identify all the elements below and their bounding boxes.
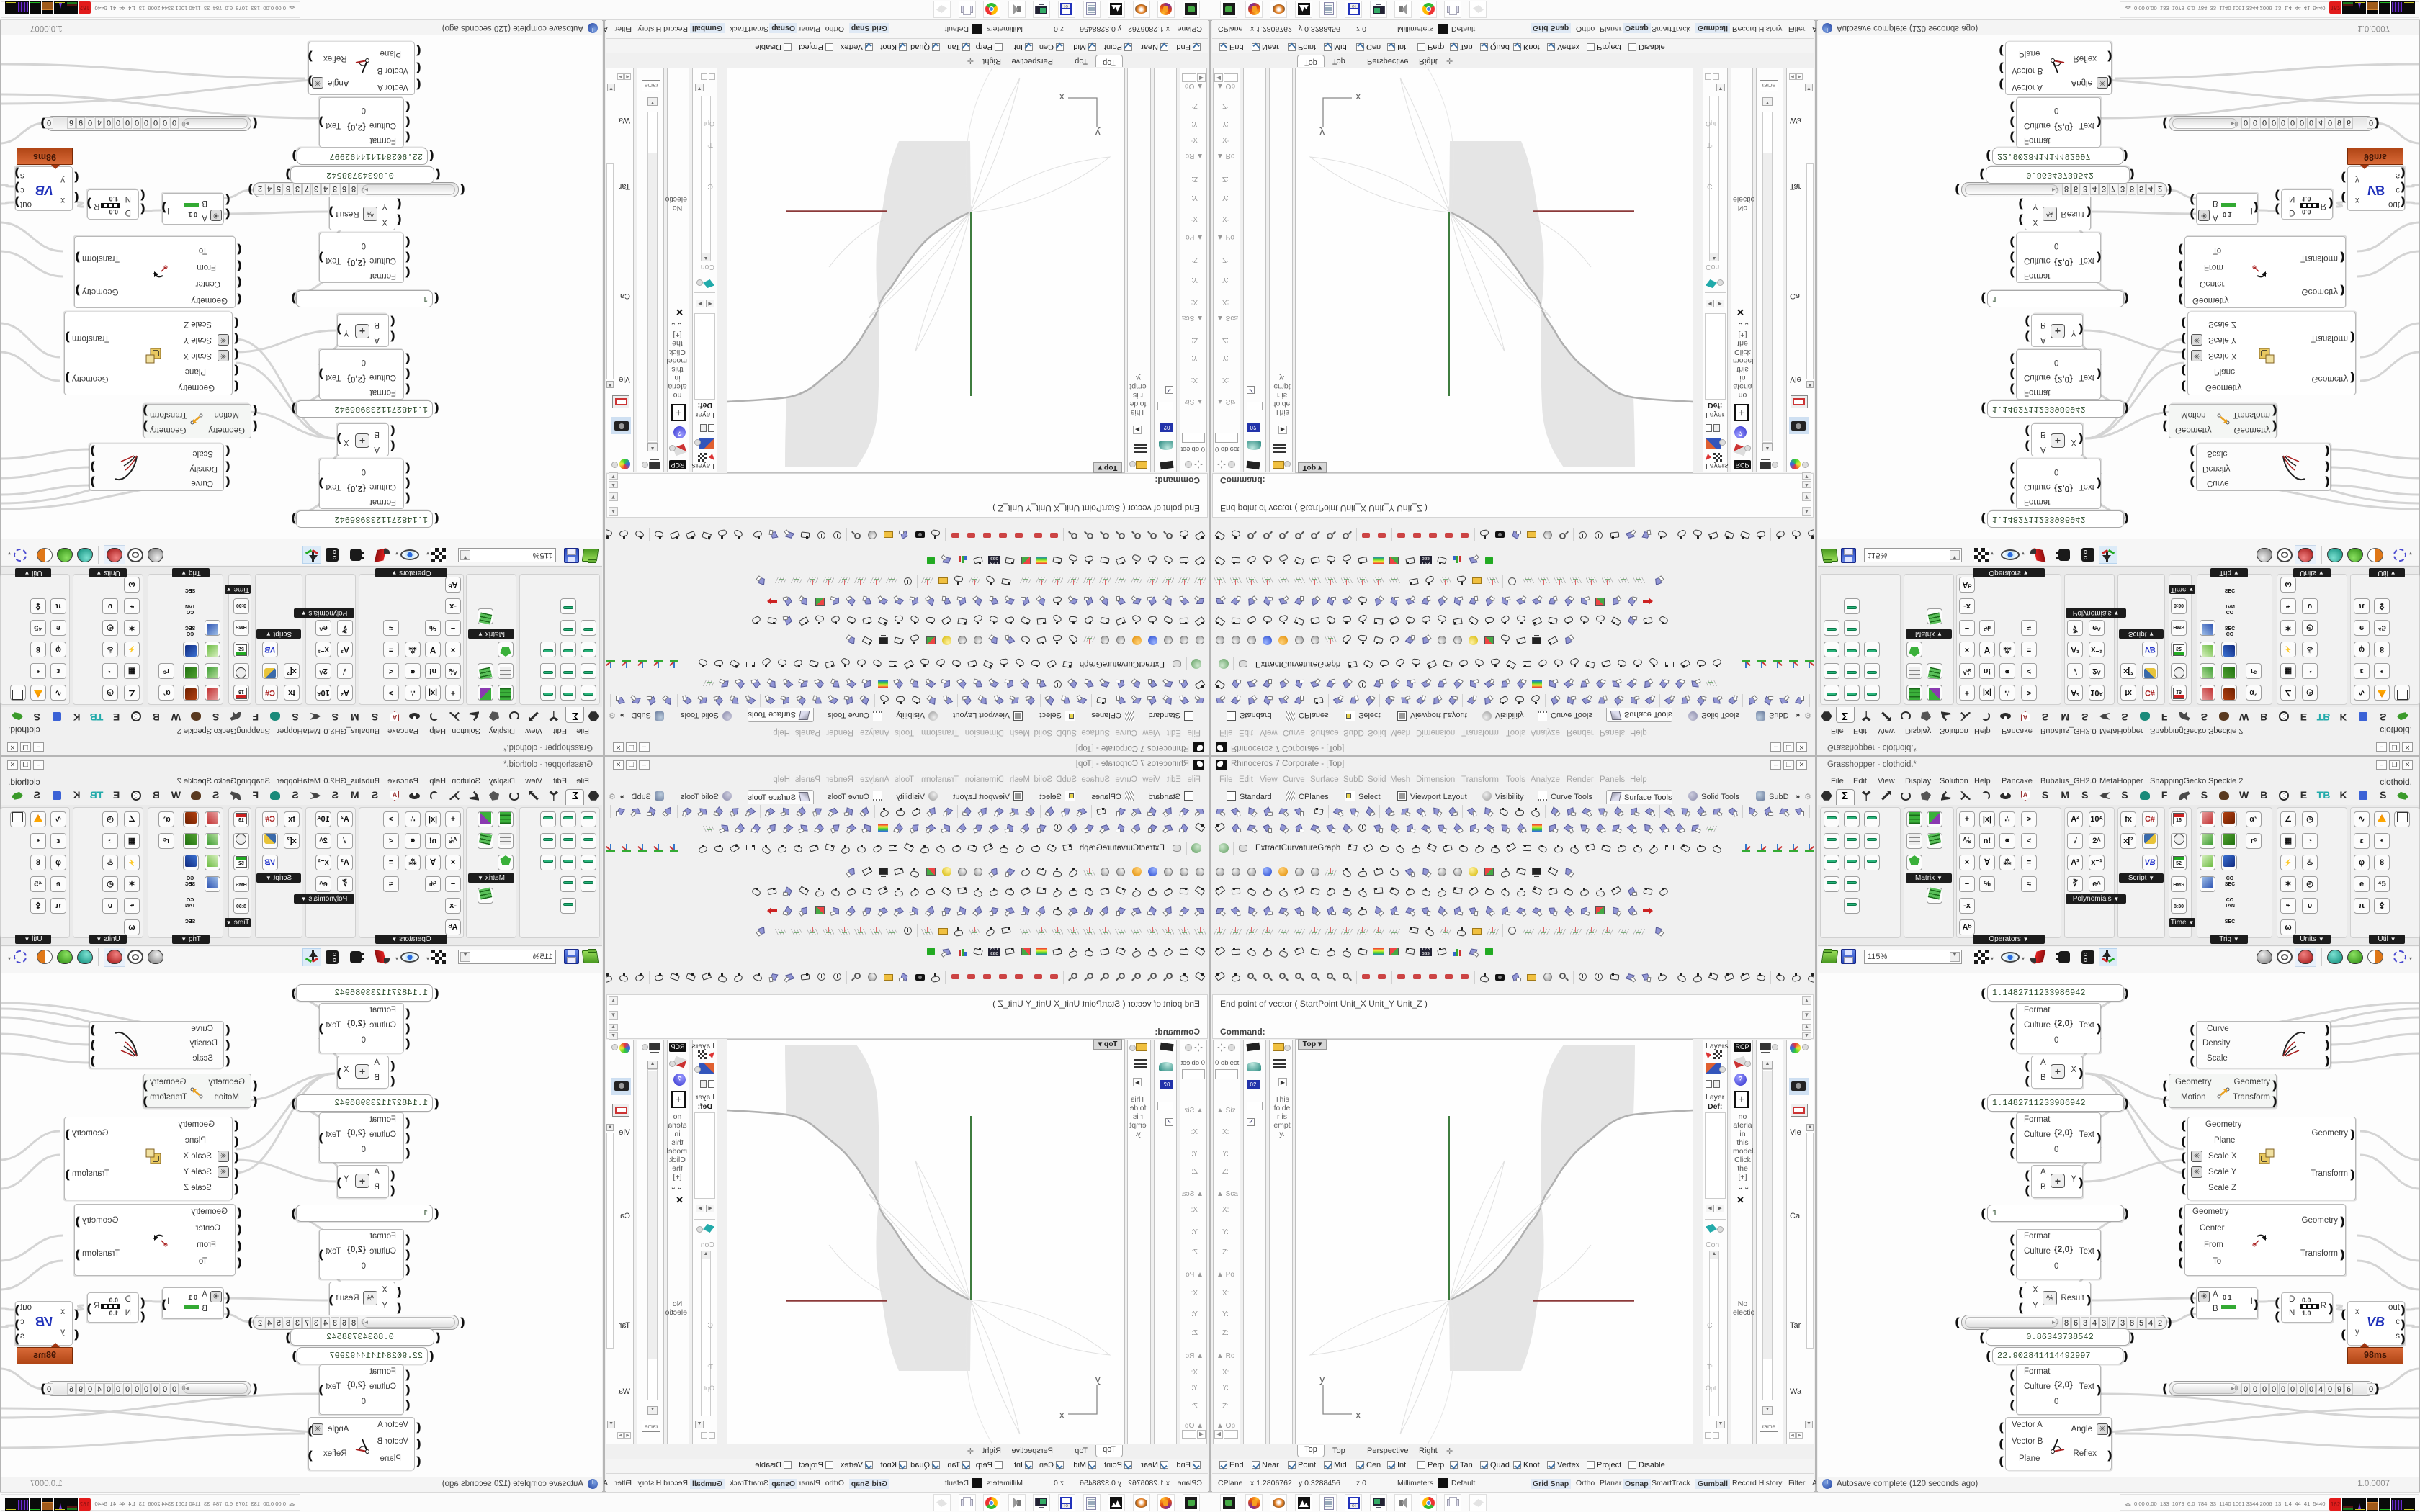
svg-text:y: y (1095, 127, 1101, 139)
svg-text:y: y (1319, 1373, 1325, 1385)
svg-text:x: x (1059, 1409, 1065, 1421)
svg-text:x: x (1355, 1409, 1361, 1421)
svg-text:x: x (1059, 91, 1065, 103)
svg-text:x: x (1355, 91, 1361, 103)
svg-text:y: y (1095, 1373, 1101, 1385)
svg-text:y: y (1319, 127, 1325, 139)
